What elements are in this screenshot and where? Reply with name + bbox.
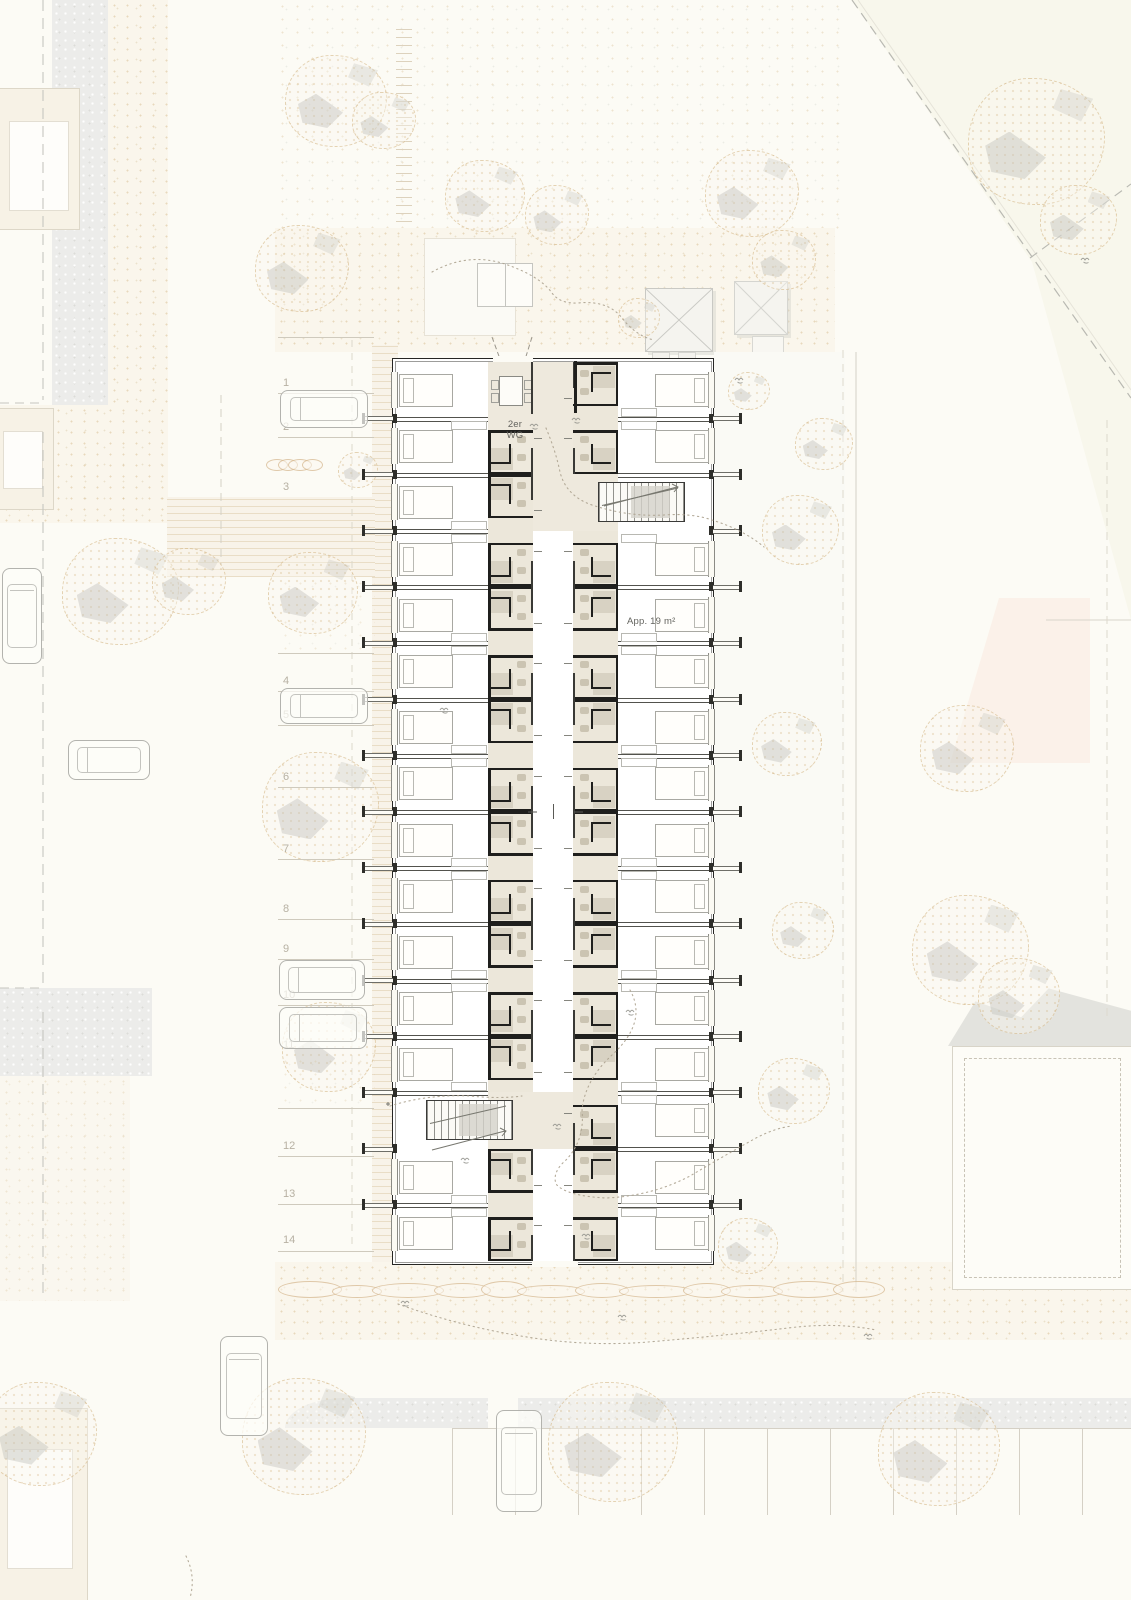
wardrobe (451, 983, 487, 992)
wardrobe (451, 633, 487, 642)
bathroom-partition (591, 575, 611, 577)
door-threshold (534, 776, 542, 777)
bathroom-wall (573, 965, 618, 968)
window (391, 1159, 398, 1195)
bed-pillow (403, 996, 414, 1021)
parking-space-number: 7 (283, 843, 289, 855)
facade-nub (709, 919, 713, 928)
wardrobe (621, 758, 657, 767)
facade-fin-cap (739, 1143, 742, 1154)
bathroom-wall (573, 1259, 618, 1262)
neighbor-plot (952, 1046, 1131, 1290)
facade-fin (713, 697, 741, 702)
bathroom-wall (616, 924, 619, 968)
door-threshold (534, 1185, 542, 1186)
toilet-fixture (517, 707, 526, 714)
bathroom-partition (591, 709, 611, 711)
car-icon (220, 1336, 268, 1436)
corridor-wall (573, 1010, 575, 1036)
sink-fixture (517, 950, 526, 957)
entry-vestibule-wall (574, 361, 577, 413)
bathroom-wall (616, 699, 619, 743)
door-threshold (564, 551, 572, 552)
facade-fin (365, 866, 393, 871)
bathroom-wall (573, 992, 618, 995)
bed (399, 824, 453, 857)
party-wall (618, 810, 710, 815)
shared-flat-label: 2er WG (495, 420, 535, 441)
bed (399, 430, 453, 463)
toilet-fixture (580, 886, 589, 893)
car-windshield (229, 1359, 258, 1360)
facade-nub (709, 1200, 713, 1209)
bed (399, 880, 453, 913)
corridor-wall (573, 786, 575, 812)
window (391, 878, 398, 914)
bathroom-partition (591, 1137, 611, 1139)
wardrobe (451, 646, 487, 655)
bed-pillow (694, 434, 705, 459)
bathroom-partition (509, 782, 511, 802)
bed (655, 992, 709, 1025)
facade-nub (393, 526, 397, 535)
wardrobe (621, 983, 657, 992)
corridor-wall (531, 362, 533, 414)
bed-pillow (694, 1108, 705, 1133)
bathroom-wall (573, 587, 618, 590)
bed-pillow (403, 828, 414, 853)
facade-fin (713, 753, 741, 758)
bathroom-wall (573, 768, 618, 771)
facade-nub (393, 414, 397, 423)
bathroom-wall (573, 1036, 618, 1039)
shower (593, 816, 615, 838)
party-wall (396, 922, 488, 927)
bathroom-partition (509, 934, 511, 954)
door-threshold (564, 398, 572, 399)
parking-space: 9 (278, 919, 374, 960)
bathroom-wall (616, 812, 619, 856)
bathroom-wall (488, 924, 533, 927)
wardrobe (621, 1082, 657, 1091)
tree-icon (618, 298, 660, 338)
door-threshold (534, 438, 542, 439)
wardrobe (621, 1095, 657, 1104)
main-building (392, 358, 714, 1265)
window (391, 484, 398, 520)
window (391, 653, 398, 689)
party-wall (618, 473, 710, 478)
window (391, 1046, 398, 1082)
bathroom-wall (616, 880, 619, 924)
sink-fixture (580, 1016, 589, 1023)
door-threshold (534, 1225, 542, 1226)
door-threshold (564, 1072, 572, 1073)
parking-space: 6 (278, 725, 374, 788)
toilet-fixture (580, 820, 589, 827)
tree-icon (718, 1218, 778, 1274)
corridor-wall (531, 587, 533, 613)
bed-pillow (403, 434, 414, 459)
facade-nub (393, 638, 397, 647)
parking-space-number: 8 (283, 903, 289, 915)
walk-path-dotted (186, 1556, 192, 1598)
shower (593, 561, 615, 583)
bed (399, 1048, 453, 1081)
parking-space (1019, 1429, 1083, 1515)
car-windshield (298, 968, 299, 992)
bathroom-partition (591, 557, 593, 577)
sink-fixture (517, 838, 526, 845)
wardrobe (451, 970, 487, 979)
bathroom-wall (616, 1149, 619, 1193)
garden-table (477, 263, 533, 307)
window (391, 372, 398, 408)
entrance-door-gap (493, 356, 533, 362)
door-threshold (534, 1000, 542, 1001)
facade-fin-cap (362, 1087, 365, 1098)
parking-space: 13 (278, 1156, 374, 1205)
shower (593, 448, 615, 470)
bed (655, 655, 709, 688)
shower (593, 703, 615, 725)
bed (399, 599, 453, 632)
window (708, 1046, 715, 1082)
facade-nub (393, 582, 397, 591)
bed (399, 1217, 453, 1250)
parking-green-gap (278, 1055, 375, 1108)
bed-pillow (403, 378, 414, 403)
facade-fin (713, 1147, 741, 1152)
bathroom-partition (491, 912, 511, 914)
bed-pillow (403, 940, 414, 965)
bed-pillow (694, 1052, 705, 1077)
shower (593, 673, 615, 695)
tree-icon (1040, 185, 1117, 255)
facade-fin-cap (362, 918, 365, 929)
bed (655, 711, 709, 744)
bathroom-partition (591, 1249, 611, 1251)
parking-space: 4 (278, 653, 374, 692)
bathroom-wall (616, 1217, 619, 1261)
facade-fin (365, 922, 393, 927)
tree-icon (878, 1392, 1000, 1506)
wardrobe (451, 1082, 487, 1091)
shower (593, 1153, 615, 1175)
window (391, 934, 398, 970)
site-plan-canvas: 1234567891011121314 2er WG App. 19 m² (0, 0, 1131, 1600)
car-icon (279, 1007, 367, 1049)
facade-nub (709, 807, 713, 816)
facade-nub (709, 751, 713, 760)
bathroom-wall (488, 1217, 533, 1220)
facade-nub (393, 1200, 397, 1209)
door-threshold (564, 1225, 572, 1226)
parking-space (1082, 1429, 1131, 1515)
bathroom-partition (591, 1159, 611, 1161)
neighbor-courtyard (9, 121, 69, 211)
bed-pillow (694, 378, 705, 403)
door-threshold (564, 623, 572, 624)
sink-fixture (517, 792, 526, 799)
bed-pillow (403, 603, 414, 628)
bathroom-partition (591, 912, 611, 914)
bathroom-wall (573, 812, 618, 815)
corridor-wall (573, 1123, 575, 1149)
corridor-wall (531, 699, 533, 725)
corridor-wall (531, 812, 533, 838)
bathroom-wall (573, 699, 618, 702)
sink-fixture (580, 1241, 589, 1248)
facade-fin (713, 472, 741, 477)
bed-pillow (694, 828, 705, 853)
party-wall (618, 698, 710, 703)
facade-fin (713, 922, 741, 927)
wg-chair (491, 380, 499, 390)
facade-fin (713, 978, 741, 983)
hedge-shrub (302, 459, 323, 471)
bed-pillow (694, 884, 705, 909)
bathroom-partition (491, 462, 511, 464)
bed (399, 655, 453, 688)
exit-door-gap (532, 1261, 578, 1267)
bed (655, 1104, 709, 1137)
tree-icon (525, 185, 589, 245)
neighbor-building (0, 88, 80, 230)
party-wall (396, 698, 488, 703)
toilet-fixture (580, 595, 589, 602)
bathroom-partition (509, 444, 511, 464)
toilet-fixture (517, 998, 526, 1005)
bathroom-wall (573, 853, 618, 856)
facade-nub (709, 1088, 713, 1097)
bathroom-partition (591, 1046, 593, 1066)
bed (655, 880, 709, 913)
bathroom-partition (591, 372, 611, 374)
bed (399, 543, 453, 576)
bed (655, 430, 709, 463)
bed (655, 543, 709, 576)
facade-fin (365, 978, 393, 983)
tree-icon (978, 958, 1060, 1034)
car-windshield (505, 1433, 533, 1434)
facade-fin (713, 585, 741, 590)
bed-pillow (403, 1165, 414, 1190)
car-cabin (501, 1427, 536, 1495)
window (708, 765, 715, 801)
window (708, 878, 715, 914)
neighbor-courtyard (3, 431, 43, 489)
window (708, 822, 715, 858)
planting-strip (0, 1076, 130, 1301)
bed-pillow (694, 1221, 705, 1246)
facade-fin (365, 1090, 393, 1095)
staircase (426, 1100, 513, 1140)
facade-fin-cap (739, 975, 742, 986)
bathroom-partition (591, 597, 593, 617)
door-threshold (564, 848, 572, 849)
bathroom-partition (491, 709, 511, 711)
shower (593, 1235, 615, 1257)
bathroom-wall (573, 655, 618, 658)
shower (593, 928, 615, 950)
facade-nub (393, 807, 397, 816)
parking-space-number: 12 (283, 1140, 295, 1152)
toilet-fixture (580, 436, 589, 443)
bathroom-partition (591, 1159, 593, 1179)
facade-nub (393, 863, 397, 872)
window (708, 372, 715, 408)
sink-fixture (517, 1175, 526, 1182)
bathroom-partition (491, 800, 511, 802)
car-icon (280, 688, 368, 724)
party-wall (618, 1147, 710, 1152)
parking-space-number: 1 (283, 377, 289, 389)
door-threshold (534, 663, 542, 664)
toilet-fixture (517, 661, 526, 668)
door-threshold (534, 1072, 542, 1073)
sidewalk (0, 988, 152, 1076)
parking-space-number: 14 (283, 1234, 295, 1246)
window (708, 597, 715, 633)
toilet-fixture (580, 998, 589, 1005)
bed (655, 1048, 709, 1081)
facade-fin (365, 1034, 393, 1039)
toilet-fixture (517, 774, 526, 781)
neighbor-building (0, 408, 54, 510)
facade-nub (393, 976, 397, 985)
neighbor-plot-dashed (964, 1058, 1121, 1278)
shower (593, 1010, 615, 1032)
sink-fixture (580, 613, 589, 620)
parking-space: 8 (278, 859, 374, 920)
bathroom-wall (616, 655, 619, 699)
sink-fixture (517, 1062, 526, 1069)
wardrobe (451, 534, 487, 543)
bathroom-wall (488, 1190, 533, 1193)
corridor-wall (573, 1036, 575, 1062)
wardrobe (621, 871, 657, 880)
sink-fixture (580, 1062, 589, 1069)
wardrobe (451, 1195, 487, 1204)
bed-pillow (403, 547, 414, 572)
party-wall (396, 1091, 488, 1096)
bathroom-wall (573, 543, 618, 546)
bathroom-partition (491, 1046, 511, 1048)
door-threshold (564, 438, 572, 439)
window (391, 541, 398, 577)
toilet-fixture (517, 1044, 526, 1051)
bathroom-wall (616, 1036, 619, 1080)
window (391, 765, 398, 801)
window (708, 428, 715, 464)
party-wall (396, 810, 488, 815)
hedge-shrub (833, 1281, 885, 1298)
facade-fin-cap (739, 637, 742, 648)
toilet-fixture (517, 886, 526, 893)
bathroom-wall (488, 812, 533, 815)
bathroom-wall (488, 1259, 533, 1262)
toilet-fixture (580, 1111, 589, 1118)
window (391, 428, 398, 464)
bathroom-partition (591, 894, 593, 914)
facade-fin-cap (739, 1031, 742, 1042)
car-cabin (7, 584, 37, 648)
bed (655, 767, 709, 800)
window (708, 990, 715, 1026)
facade-fin (365, 416, 393, 421)
corridor-wall (531, 474, 533, 500)
wardrobe (451, 1208, 487, 1217)
bathroom-partition (491, 822, 511, 824)
wardrobe (621, 421, 657, 430)
bathroom-wall (616, 587, 619, 631)
facade-fin-cap (362, 525, 365, 536)
bathroom-partition (491, 934, 511, 936)
facade-fin (713, 529, 741, 534)
facade-fin (365, 810, 393, 815)
facade-fin (365, 529, 393, 534)
window (708, 541, 715, 577)
wardrobe (621, 858, 657, 867)
toilet-fixture (580, 549, 589, 556)
sink-fixture (517, 500, 526, 507)
bathroom-partition (509, 1046, 511, 1066)
bathroom-partition (591, 669, 593, 689)
parking-space: 1 (278, 337, 374, 394)
facade-fin (365, 697, 393, 702)
shared-flat-label-line1: 2er (508, 419, 522, 430)
bathroom-partition (591, 597, 611, 599)
bathroom-partition (509, 557, 511, 577)
facade-nub (393, 751, 397, 760)
car-windshield (300, 695, 301, 717)
sink-fixture (580, 679, 589, 686)
bathroom-wall (616, 362, 619, 406)
bathroom-wall (616, 768, 619, 812)
facade-nub (709, 414, 713, 423)
bathroom-partition (491, 575, 511, 577)
bed (399, 711, 453, 744)
parking-space: 7 (278, 787, 374, 860)
bathroom-wall (488, 965, 533, 968)
facade-fin (713, 810, 741, 815)
bathroom-partition (509, 1231, 511, 1251)
party-wall (618, 1035, 710, 1040)
bathroom-wall (488, 543, 533, 546)
bed-pillow (694, 771, 705, 796)
bathroom-partition (591, 822, 593, 842)
wardrobe (621, 1195, 657, 1204)
facade-fin-cap (739, 750, 742, 761)
car-icon (68, 740, 150, 780)
sink-fixture (517, 613, 526, 620)
door-threshold (564, 1185, 572, 1186)
bathroom-partition (591, 822, 611, 824)
facade-nub (709, 863, 713, 872)
corridor-wall (573, 1235, 575, 1261)
bathroom-wall (488, 853, 533, 856)
bed-pillow (694, 1165, 705, 1190)
bathroom-wall (573, 430, 618, 433)
toilet-fixture (517, 820, 526, 827)
facade-fin (365, 753, 393, 758)
facade-fin-cap (362, 1199, 365, 1210)
door-threshold (534, 551, 542, 552)
bathroom-partition (509, 484, 511, 504)
corridor-wall (531, 1010, 533, 1036)
tree-icon (762, 495, 839, 565)
